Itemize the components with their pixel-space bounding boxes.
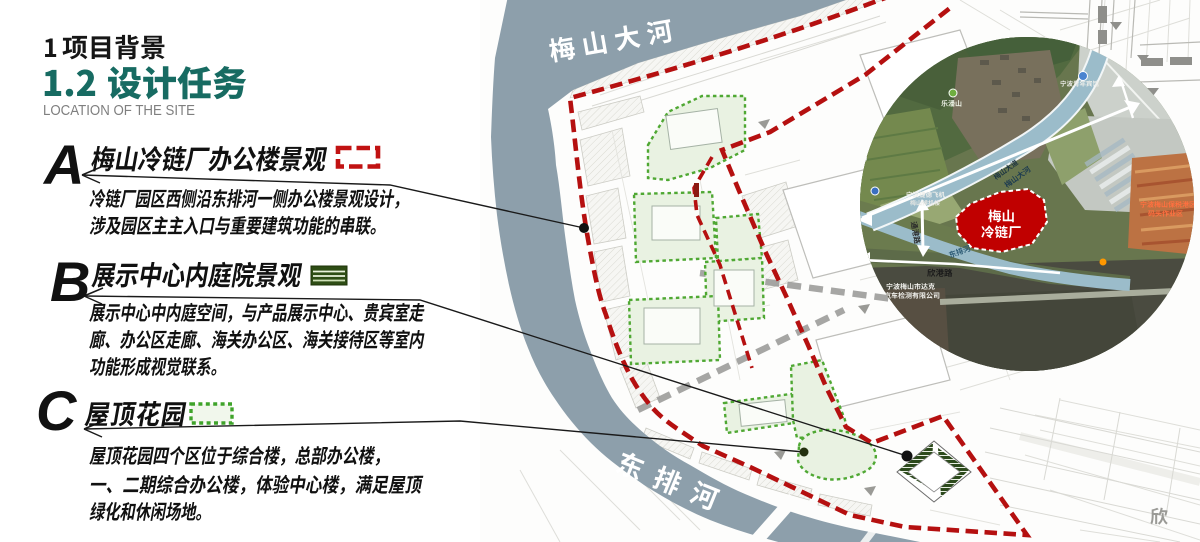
svg-text:B: B (50, 250, 90, 313)
svg-text:C: C (36, 379, 78, 442)
svg-text:A: A (42, 133, 84, 196)
svg-text:LOCATION OF THE SITE: LOCATION OF THE SITE (43, 102, 195, 119)
